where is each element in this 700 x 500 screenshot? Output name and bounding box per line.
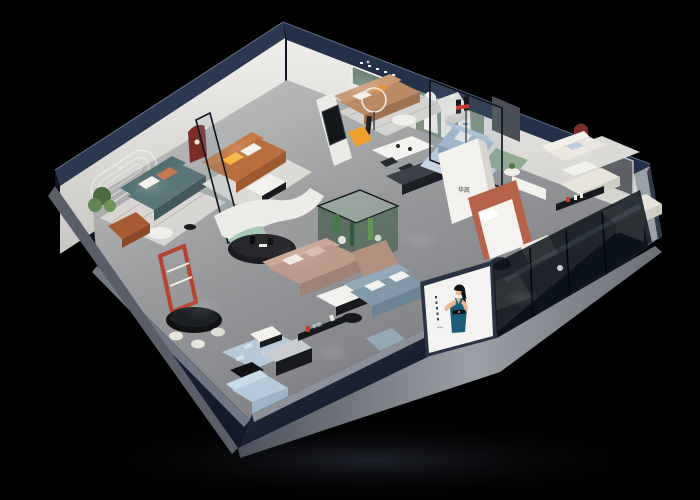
showroom-render: 华凯 华凯 <box>0 0 700 500</box>
brand-mark-red <box>566 197 570 202</box>
plant-icon <box>509 163 515 169</box>
cactus-icon <box>334 214 339 234</box>
dining-chair-cream <box>211 328 225 337</box>
brand-mark-red <box>306 326 310 332</box>
coffee-table-round-white <box>147 227 173 239</box>
vase-icon <box>250 236 255 244</box>
side-table-black <box>184 224 196 230</box>
niche-vase <box>194 139 199 144</box>
brand-logo-text: 华凯 <box>458 186 470 194</box>
side-table-round <box>504 168 520 176</box>
coffee-table-round <box>392 115 416 126</box>
dining-chair-cream <box>191 340 205 349</box>
glass-light-dot <box>557 265 563 271</box>
ground-reflection <box>70 418 670 500</box>
isometric-scene: 华凯 华凯 <box>0 0 700 500</box>
dining-chair-cream <box>169 332 183 341</box>
